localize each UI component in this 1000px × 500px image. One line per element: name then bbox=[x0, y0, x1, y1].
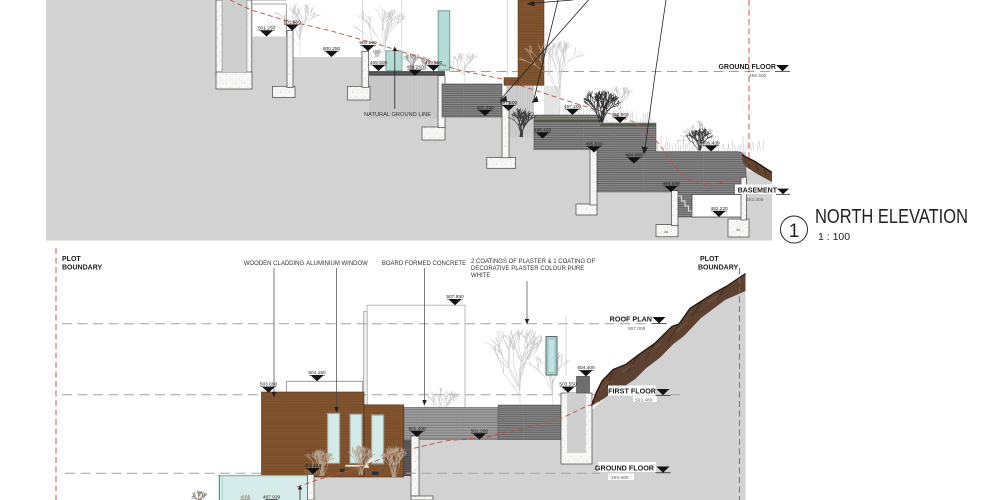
svg-text:FIRST FLOOR: FIRST FLOOR bbox=[608, 387, 657, 396]
svg-text:BASEMENT: BASEMENT bbox=[738, 188, 778, 195]
svg-text:PLOT: PLOT bbox=[62, 256, 81, 263]
svg-text:NORTH ELEVATION: NORTH ELEVATION bbox=[815, 206, 968, 228]
svg-text:ROOF PLAN: ROOF PLAN bbox=[610, 315, 652, 324]
svg-text:1 : 100: 1 : 100 bbox=[818, 231, 850, 243]
svg-text:4a: 4a bbox=[736, 228, 740, 232]
svg-text:GROUND FLOOR: GROUND FLOOR bbox=[718, 64, 776, 71]
svg-text:499.580: 499.580 bbox=[611, 475, 629, 481]
svg-text:2 COATINGS OF PLASTER & 1 COAT: 2 COATINGS OF PLASTER & 1 COATING OF bbox=[471, 259, 595, 265]
svg-text:503.480: 503.480 bbox=[635, 398, 653, 404]
svg-text:NATURAL GROUND LINE: NATURAL GROUND LINE bbox=[364, 112, 431, 118]
svg-text:PLOT: PLOT bbox=[700, 256, 719, 263]
svg-text:487.939: 487.939 bbox=[263, 495, 281, 500]
svg-text:GROUND FLOOR: GROUND FLOOR bbox=[595, 464, 655, 473]
svg-text:493.308: 493.308 bbox=[746, 197, 764, 203]
svg-text:BOARD FORMED CONCRETE: BOARD FORMED CONCRETE bbox=[382, 261, 466, 267]
svg-text:DECORATIVE PLASTER COLOUR PURE: DECORATIVE PLASTER COLOUR PURE bbox=[471, 266, 584, 272]
svg-text:498.500: 498.500 bbox=[749, 73, 767, 79]
svg-text:WOODEN CLADDING: WOODEN CLADDING bbox=[244, 261, 305, 267]
svg-text:BOUNDARY: BOUNDARY bbox=[62, 265, 103, 272]
svg-text:1: 1 bbox=[789, 221, 800, 242]
svg-text:ALUMINIUM WINDOW: ALUMINIUM WINDOW bbox=[306, 261, 368, 267]
svg-text:WHITE: WHITE bbox=[471, 273, 490, 279]
svg-text:4a: 4a bbox=[664, 230, 668, 234]
svg-text:BOUNDARY: BOUNDARY bbox=[698, 265, 739, 272]
svg-text:507.008: 507.008 bbox=[628, 326, 646, 332]
